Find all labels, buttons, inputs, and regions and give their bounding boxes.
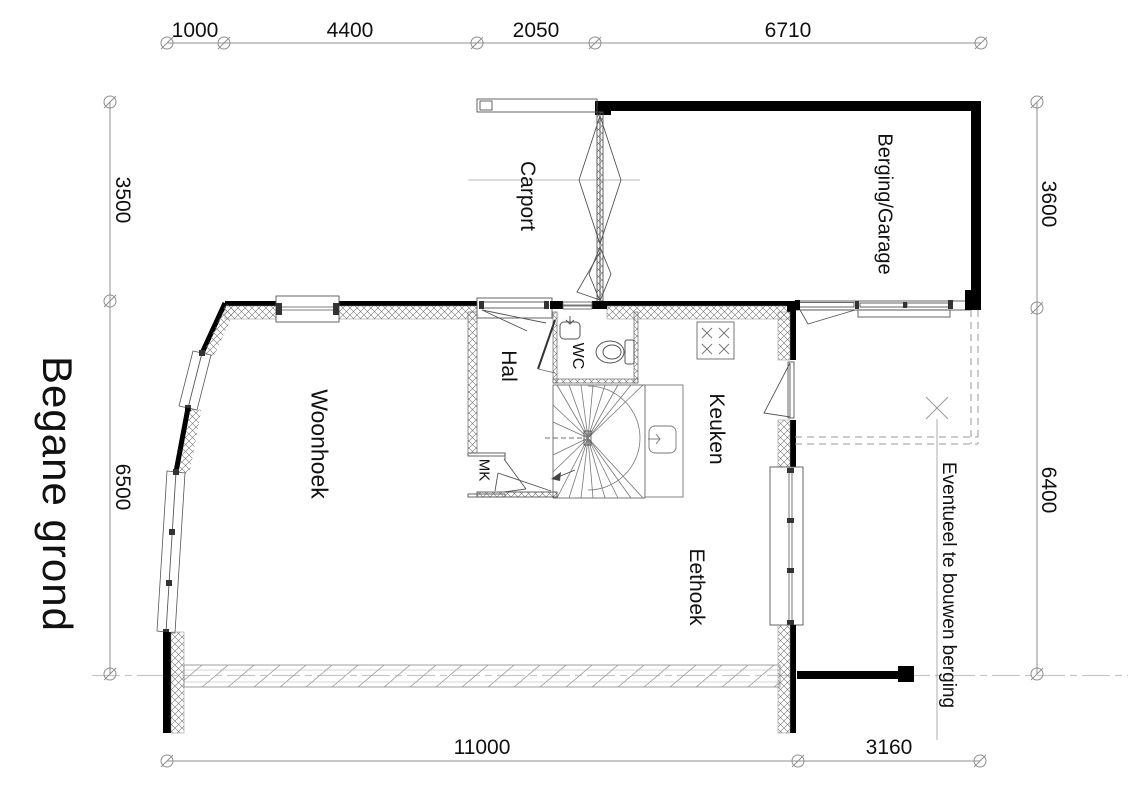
dim-right-6400: 6400 xyxy=(1036,467,1060,514)
dim-right-3600: 3600 xyxy=(1036,181,1060,228)
bottom-band xyxy=(184,665,780,687)
toilet xyxy=(596,340,634,364)
wall-stub xyxy=(797,666,914,682)
stairs xyxy=(545,385,645,498)
room-label-mk: MK xyxy=(476,459,493,482)
dim-left-6500: 6500 xyxy=(110,464,134,511)
house-top-wall xyxy=(225,296,790,331)
dim-top-6710: 6710 xyxy=(765,19,812,43)
annex-x-mark xyxy=(926,397,948,419)
window-top xyxy=(276,296,339,322)
dim-left-3500: 3500 xyxy=(110,177,134,224)
dim-bottom-11000: 11000 xyxy=(454,736,511,760)
wc-basin xyxy=(560,316,580,339)
room-label-keuken: Keuken xyxy=(704,393,728,464)
floor-plan-page: Begane grond 1000 4400 2050 6710 11000 3… xyxy=(0,0,1133,800)
room-label-hal: Hal xyxy=(496,350,520,382)
page-title: Begane grond xyxy=(33,356,81,632)
room-label-woonhoek: Woonhoek xyxy=(306,389,333,499)
room-label-eethoek: Eethoek xyxy=(684,548,708,625)
dim-top-1000: 1000 xyxy=(172,19,219,43)
kitchen-counter xyxy=(645,385,683,497)
room-label-berging-garage: Berging/Garage xyxy=(873,133,896,274)
dim-top-2050: 2050 xyxy=(513,19,560,43)
stove xyxy=(697,322,734,359)
dimension-grid xyxy=(104,37,1043,767)
garage-walls xyxy=(595,101,981,324)
room-label-wc: WC xyxy=(568,343,586,370)
room-label-carport: Carport xyxy=(515,161,539,231)
annotation-future-shed: Eventueel te bouwen berging xyxy=(937,462,959,708)
right-wall-door xyxy=(764,362,794,418)
window-left-2 xyxy=(157,469,185,635)
dim-bottom-3160: 3160 xyxy=(866,736,913,760)
carport-structure xyxy=(468,99,640,302)
kitchen-sink xyxy=(648,426,676,453)
front-door xyxy=(477,298,552,331)
window-left-1 xyxy=(179,350,211,411)
floor-plan-drawing xyxy=(0,0,1133,800)
dim-top-4400: 4400 xyxy=(327,19,374,43)
window-right xyxy=(770,467,803,625)
